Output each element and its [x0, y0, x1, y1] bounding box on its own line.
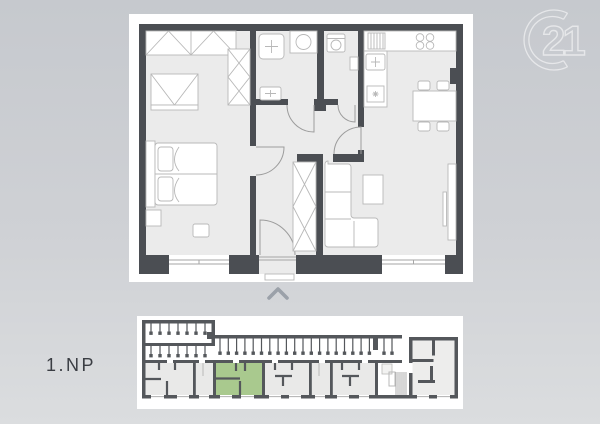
century21-logo: 21 — [512, 2, 596, 82]
corridor-ticks — [218, 339, 393, 355]
coffee-table — [363, 175, 383, 204]
bottom-facade — [142, 395, 458, 399]
cellar-ticks-row2 — [149, 346, 206, 357]
logo-number: 21 — [542, 17, 585, 64]
nightstand — [193, 224, 209, 237]
apartment-floorplan — [129, 14, 473, 282]
chair — [418, 81, 430, 90]
chair — [418, 122, 430, 131]
wardrobe — [146, 31, 236, 55]
shower — [259, 34, 284, 59]
hand-basin — [350, 57, 358, 70]
fridge — [368, 33, 385, 49]
dishwasher — [367, 86, 384, 102]
dining-table — [413, 91, 456, 121]
chevron-up-icon — [265, 285, 291, 302]
floor-label: 1.NP — [46, 355, 116, 376]
building-floorplan — [137, 316, 463, 409]
washbasin — [290, 31, 317, 53]
tall-wardrobe — [228, 49, 250, 105]
hallway-wardrobe — [293, 162, 316, 251]
building-floors — [146, 341, 455, 396]
washing-machine — [327, 34, 345, 52]
building-overview-card — [137, 316, 463, 409]
kitchen-sink — [366, 54, 385, 70]
corridor — [212, 335, 403, 355]
dresser — [146, 210, 161, 226]
living-room-window — [382, 255, 445, 274]
tv — [443, 192, 447, 226]
bedroom-window — [169, 255, 229, 274]
chair — [437, 122, 449, 131]
chair — [437, 81, 449, 90]
double-bed — [146, 141, 217, 207]
tv-sideboard — [448, 164, 456, 240]
apartment-floorplan-card — [129, 14, 473, 282]
desk — [151, 74, 198, 110]
cellar-ticks-row1 — [149, 324, 206, 335]
sink-small — [260, 87, 281, 100]
